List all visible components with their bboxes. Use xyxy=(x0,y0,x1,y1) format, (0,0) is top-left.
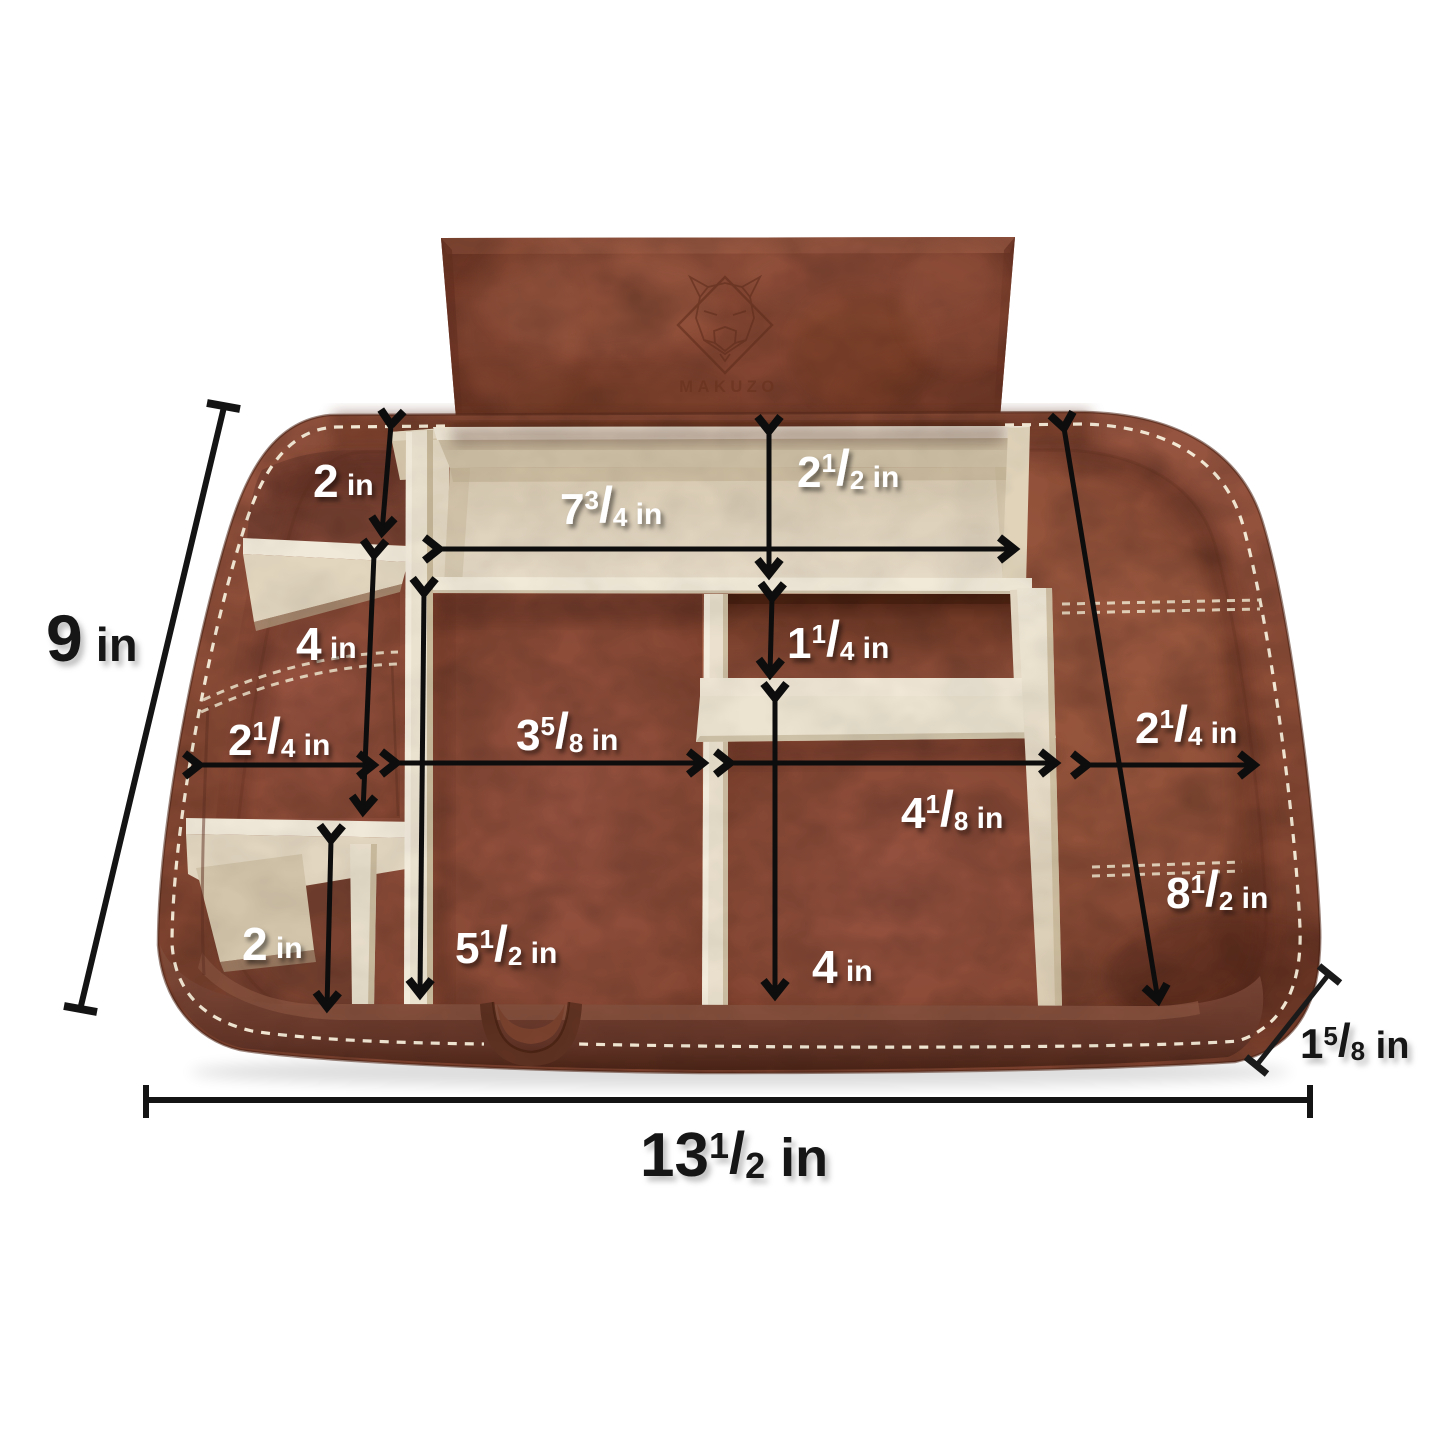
svg-text:131/2 in: 131/2 in xyxy=(640,1121,828,1190)
svg-text:MAKUZO: MAKUZO xyxy=(679,378,778,396)
